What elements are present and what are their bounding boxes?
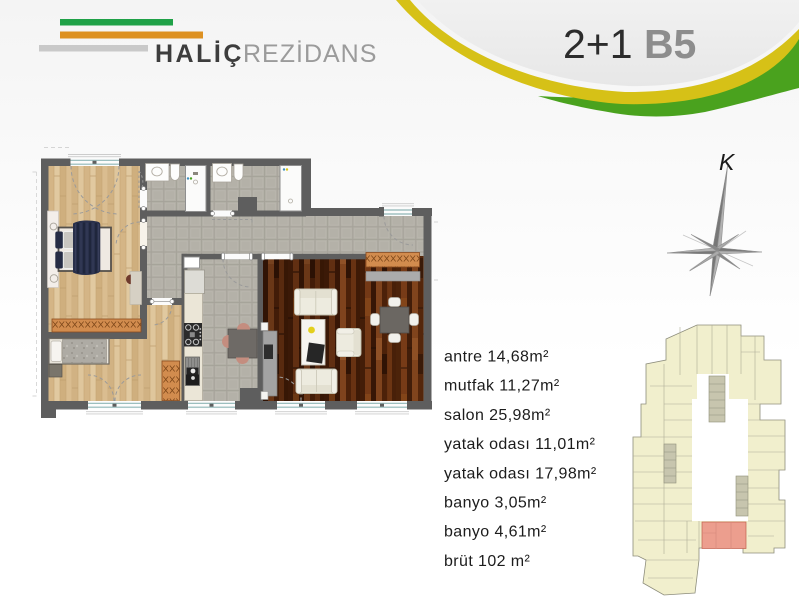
svg-text:mutfak 11,27m²: mutfak 11,27m² [444, 378, 560, 395]
svg-text:REZİDANS: REZİDANS [243, 39, 377, 68]
svg-text:2+1 B5: 2+1 B5 [563, 21, 696, 67]
svg-text:K: K [719, 149, 736, 175]
svg-text:brüt 102 m²: brüt 102 m² [444, 553, 530, 570]
svg-text:banyo 3,05m²: banyo 3,05m² [444, 495, 547, 512]
svg-text:salon 25,98m²: salon 25,98m² [444, 407, 551, 424]
svg-text:yatak odası 11,01m²: yatak odası 11,01m² [444, 436, 596, 453]
svg-text:antre 14,68m²: antre 14,68m² [444, 349, 549, 366]
svg-text:HALİÇ: HALİÇ [155, 40, 244, 68]
svg-text:yatak odası 17,98m²: yatak odası 17,98m² [444, 465, 597, 482]
svg-text:banyo 4,61m²: banyo 4,61m² [444, 524, 547, 541]
